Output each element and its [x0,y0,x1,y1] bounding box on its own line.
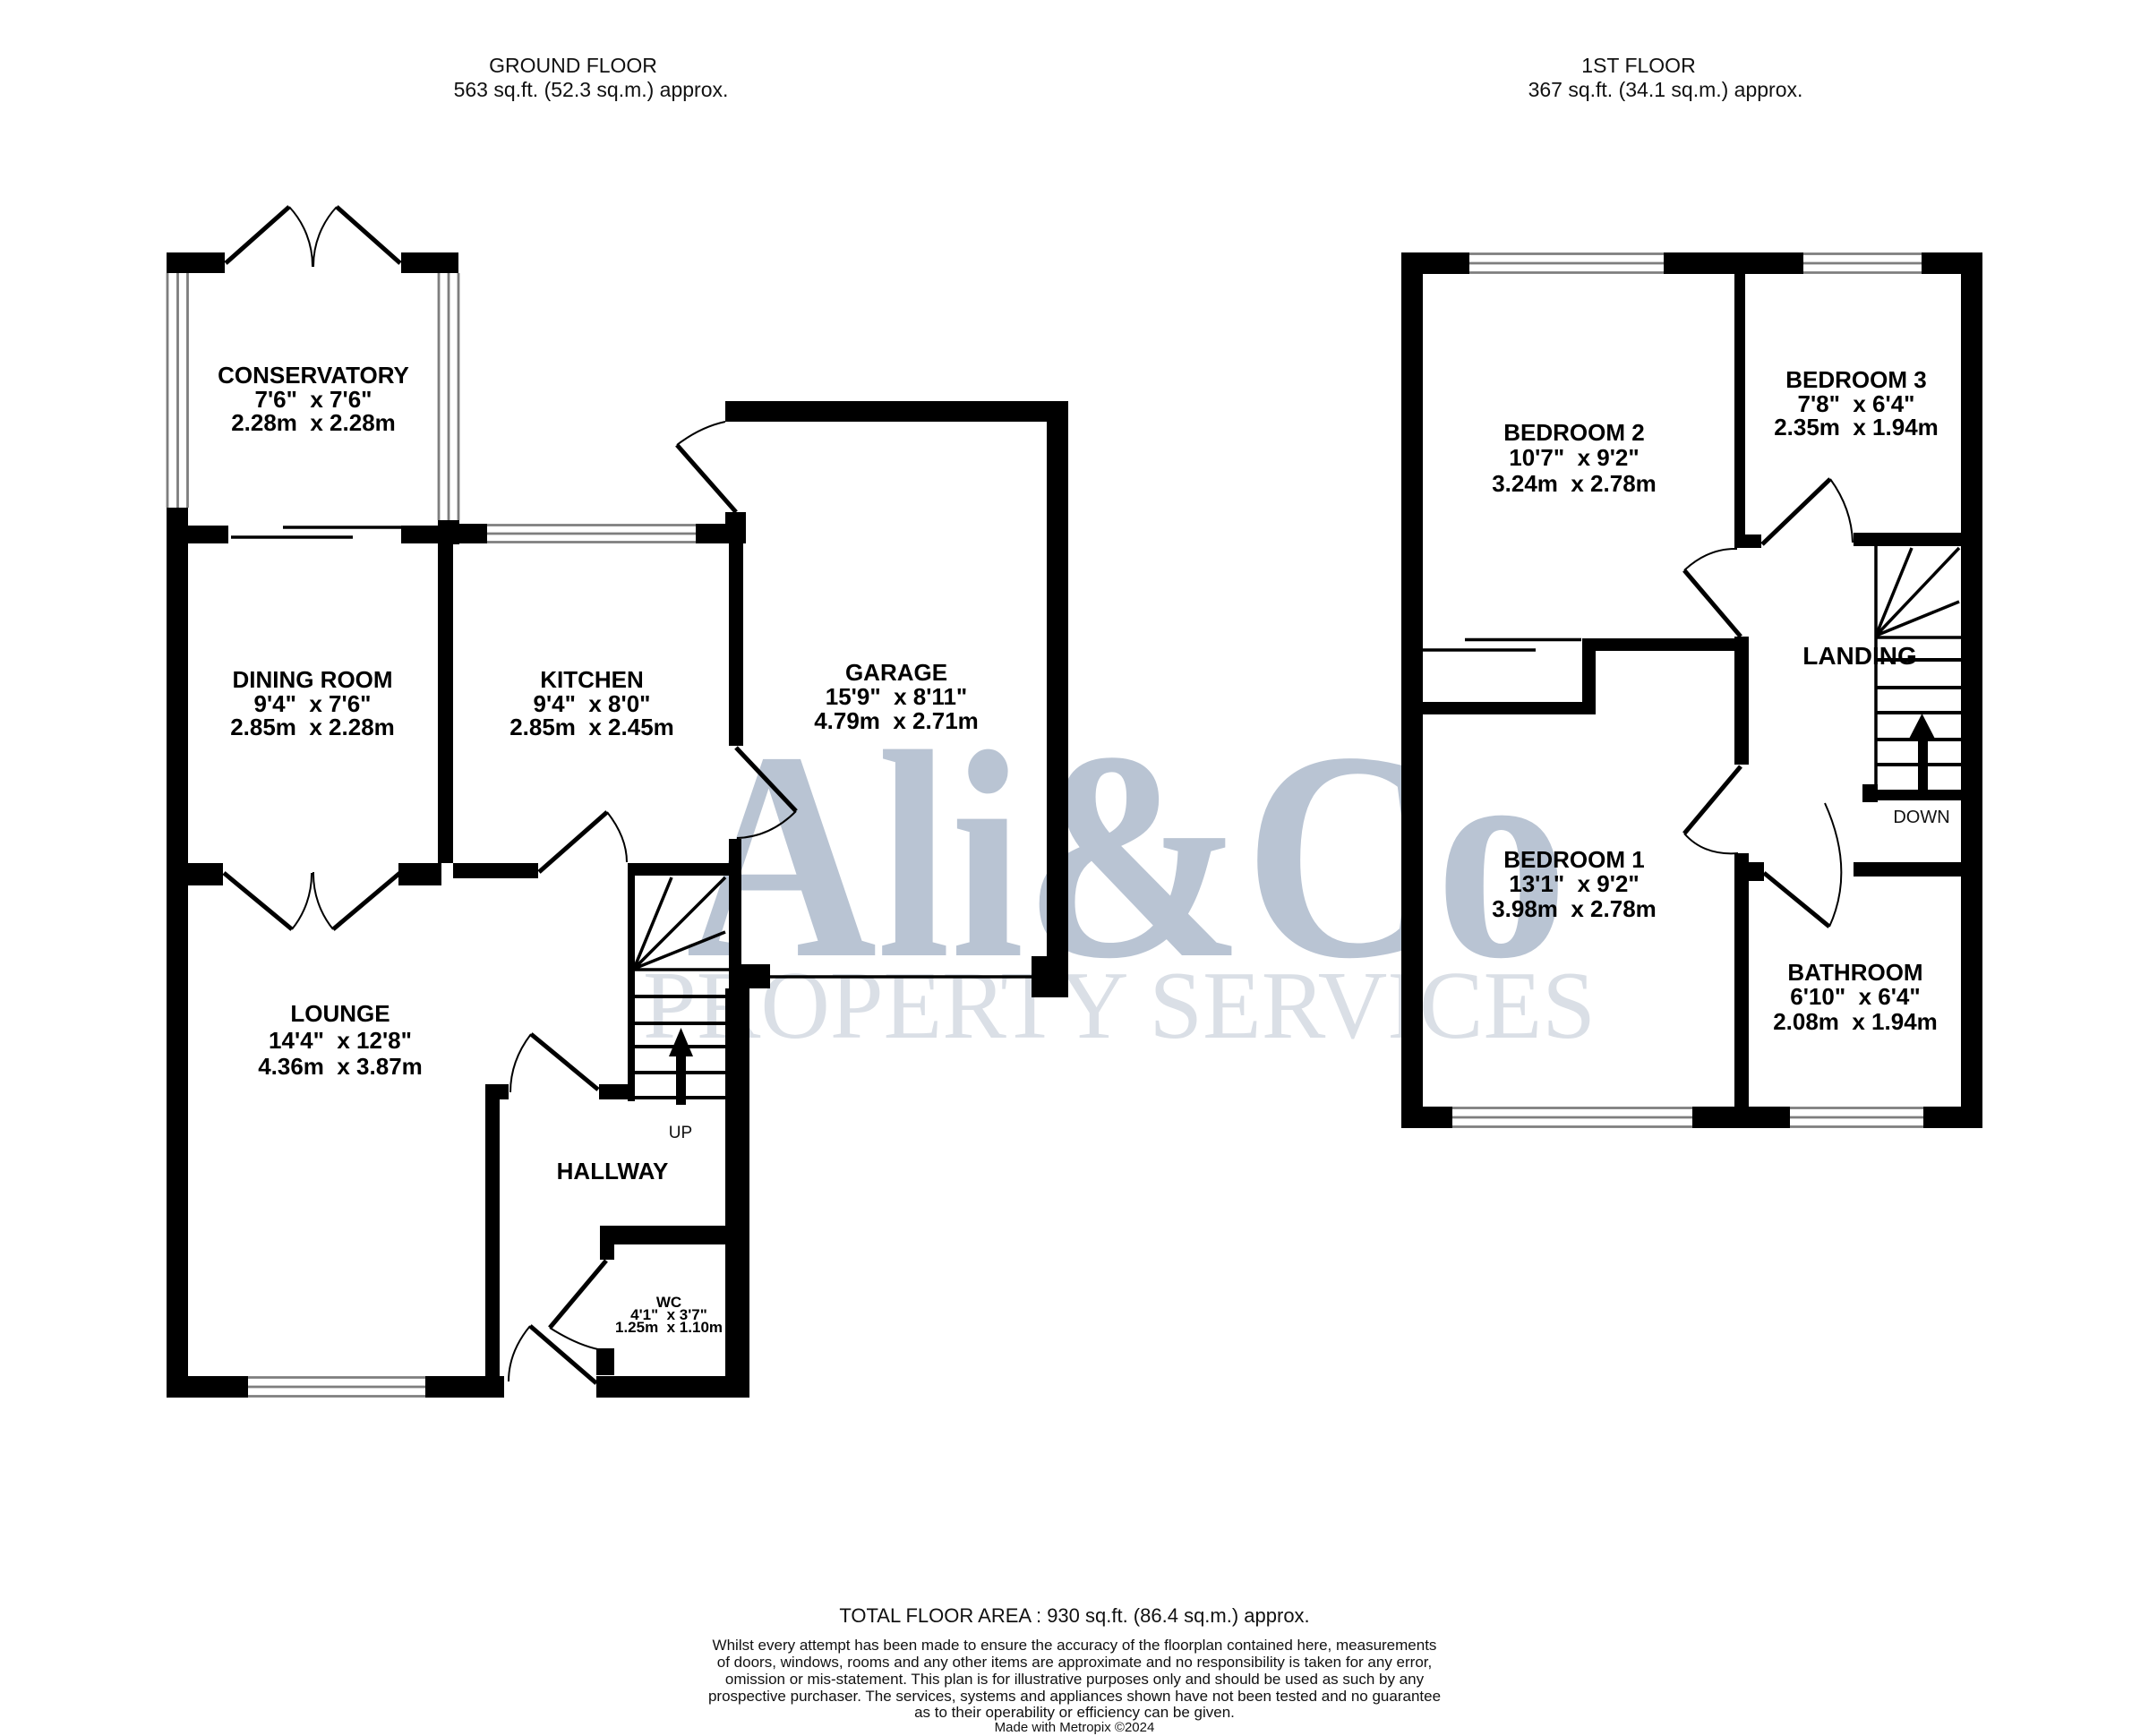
svg-text:13'1" x 9'2": 13'1" x 9'2" [1509,870,1639,897]
svg-text:BATHROOM: BATHROOM [1787,959,1922,986]
svg-text:DOWN: DOWN [1893,808,1949,827]
svg-text:14'4" x 12'8": 14'4" x 12'8" [269,1027,412,1054]
svg-text:10'7" x 9'2": 10'7" x 9'2" [1509,444,1639,471]
svg-text:1ST FLOOR: 1ST FLOOR [1581,54,1695,77]
svg-text:4.36m x 3.87m: 4.36m x 3.87m [258,1053,423,1080]
svg-text:HALLWAY: HALLWAY [557,1158,669,1184]
svg-text:as to their operability or eff: as to their operability or efficiency ca… [914,1704,1235,1721]
svg-text:Whilst every attempt has been: Whilst every attempt has been made to en… [713,1637,1437,1654]
svg-text:UP: UP [669,1124,692,1142]
svg-text:2.85m x 2.45m: 2.85m x 2.45m [509,714,674,740]
svg-text:BEDROOM 2: BEDROOM 2 [1503,419,1644,446]
svg-text:2.85m x 2.28m: 2.85m x 2.28m [230,714,395,740]
svg-text:of doors, windows, rooms and a: of doors, windows, rooms and any other i… [717,1654,1432,1671]
svg-text:2.35m x 1.94m: 2.35m x 1.94m [1774,414,1939,440]
svg-text:3.98m x 2.78m: 3.98m x 2.78m [1492,895,1657,922]
svg-text:15'9" x 8'11": 15'9" x 8'11" [826,683,967,710]
svg-text:omission or mis-statement. Thi: omission or mis-statement. This plan is … [725,1671,1425,1688]
svg-text:2.08m x 1.94m: 2.08m x 1.94m [1773,1008,1938,1035]
svg-text:367 sq.ft. (34.1 sq.m.) approx: 367 sq.ft. (34.1 sq.m.) approx. [1528,78,1803,101]
svg-text:LANDING: LANDING [1802,642,1917,670]
svg-text:BEDROOM 1: BEDROOM 1 [1503,846,1644,873]
svg-text:1.25m x 1.10m: 1.25m x 1.10m [615,1319,723,1336]
svg-text:4.79m x 2.71m: 4.79m x 2.71m [814,707,979,734]
svg-text:CONSERVATORY: CONSERVATORY [218,362,409,389]
svg-text:563 sq.ft. (52.3 sq.m.) approx: 563 sq.ft. (52.3 sq.m.) approx. [454,78,729,101]
svg-text:DINING ROOM: DINING ROOM [232,666,392,693]
svg-text:2.28m x 2.28m: 2.28m x 2.28m [231,409,396,436]
svg-text:GARAGE: GARAGE [845,659,947,686]
svg-text:6'10" x 6'4": 6'10" x 6'4" [1790,983,1920,1010]
svg-text:Made with Metropix ©2024: Made with Metropix ©2024 [995,1720,1155,1735]
svg-text:LOUNGE: LOUNGE [290,1000,390,1027]
svg-text:BEDROOM 3: BEDROOM 3 [1785,366,1926,393]
svg-text:prospective purchaser. The ser: prospective purchaser. The services, sys… [708,1688,1441,1705]
svg-text:3.24m x 2.78m: 3.24m x 2.78m [1492,470,1657,497]
svg-text:TOTAL FLOOR AREA : 930 sq.ft.: TOTAL FLOOR AREA : 930 sq.ft. (86.4 sq.m… [839,1604,1309,1627]
svg-text:GROUND FLOOR: GROUND FLOOR [489,54,657,77]
svg-text:PROPERTY SERVICES: PROPERTY SERVICES [643,953,1596,1059]
svg-text:KITCHEN: KITCHEN [540,666,644,693]
